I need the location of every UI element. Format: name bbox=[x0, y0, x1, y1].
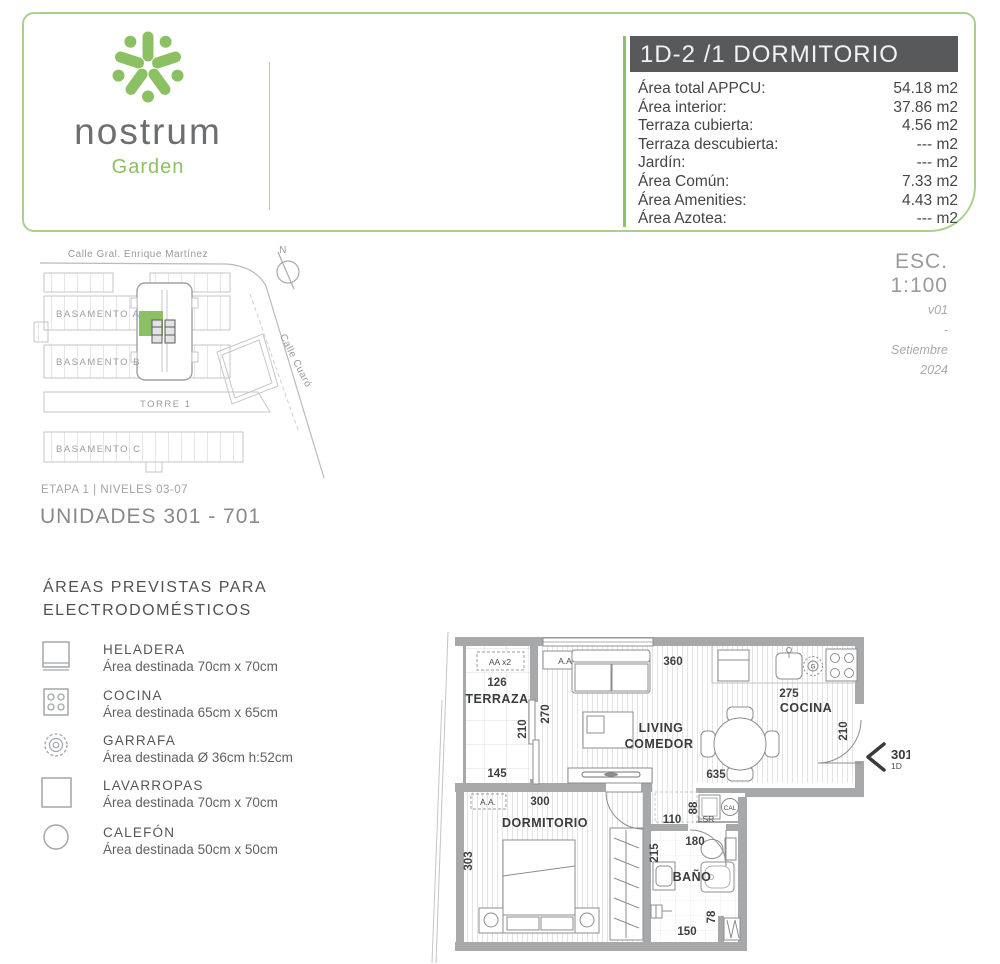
legend-item-name: CALEFÓN bbox=[103, 825, 175, 840]
terraza-label: TERRAZA bbox=[465, 692, 528, 706]
table-row: Terraza descubierta:--- m2 bbox=[638, 136, 958, 155]
area-value: --- m2 bbox=[917, 210, 958, 229]
scale-esc: ESC. bbox=[820, 250, 948, 274]
legend-item-desc: Área destinada 70cm x 70cm bbox=[103, 659, 278, 674]
area-value: 54.18 m2 bbox=[893, 80, 958, 99]
dim-215: 215 bbox=[649, 843, 661, 863]
scale-year: 2024 bbox=[820, 362, 948, 378]
street-top-label: Calle Gral. Enrique Martínez bbox=[68, 249, 208, 260]
water-heater-icon bbox=[40, 823, 72, 855]
svg-text:G: G bbox=[810, 664, 815, 671]
legend-item-name: HELADERA bbox=[103, 642, 185, 657]
basamento-a-label: BASAMENTO A bbox=[56, 309, 140, 320]
lsr-label: LSR bbox=[698, 814, 715, 824]
area-label: Área Azotea: bbox=[638, 210, 727, 229]
dim-270: 270 bbox=[540, 704, 552, 723]
dim-150: 150 bbox=[677, 926, 696, 938]
dim-180: 180 bbox=[685, 836, 704, 848]
area-value: 4.43 m2 bbox=[902, 192, 958, 211]
dim-275: 275 bbox=[779, 688, 799, 700]
brand-name: nostrum bbox=[58, 111, 238, 153]
legend-title: ÁREAS PREVISTAS PARA ELECTRODOMÉSTICOS bbox=[43, 576, 267, 622]
legend-title-line1: ÁREAS PREVISTAS PARA bbox=[43, 576, 267, 599]
living-label-1: LIVING bbox=[639, 721, 684, 735]
dim-300: 300 bbox=[530, 796, 549, 808]
stage-level-label: ETAPA 1 | NIVELES 03-07 bbox=[41, 484, 188, 496]
basamento-c-label: BASAMENTO C bbox=[56, 444, 141, 455]
living-label-2: COMEDOR bbox=[625, 737, 694, 751]
legend-item-lavarropas: LAVARROPAS Área destinada 70cm x 70cm bbox=[40, 776, 370, 818]
table-row: Área Común:7.33 m2 bbox=[638, 173, 958, 192]
scale-version: v01 bbox=[820, 302, 948, 318]
fridge-space bbox=[718, 650, 749, 681]
dim-88: 88 bbox=[688, 801, 700, 814]
area-label: Terraza cubierta: bbox=[638, 117, 753, 136]
site-plan: N Calle Gral. Enrique Martínez Call bbox=[30, 240, 340, 490]
legend-item-heladera: HELADERA Área destinada 70cm x 70cm bbox=[40, 640, 370, 682]
brand-logo: nostrum Garden bbox=[58, 26, 238, 179]
legend-item-desc: Área destinada 50cm x 50cm bbox=[103, 842, 278, 857]
brand-subtitle: Garden bbox=[58, 156, 238, 179]
area-value: 37.86 m2 bbox=[893, 99, 958, 118]
scale-block: ESC. 1:100 v01 - Setiembre 2024 bbox=[820, 250, 948, 378]
torre-label: TORRE 1 bbox=[140, 399, 192, 410]
area-table: Área total APPCU:54.18 m2 Área interior:… bbox=[638, 80, 958, 229]
toilet bbox=[701, 838, 736, 860]
terrace-sliding-door bbox=[529, 700, 539, 784]
dim-210-terraza: 210 bbox=[517, 719, 529, 738]
basamento-b-label: BASAMENTO B bbox=[56, 357, 141, 368]
north-arrow-icon: N bbox=[277, 245, 299, 289]
dim-78: 78 bbox=[706, 910, 718, 923]
washer-icon bbox=[40, 776, 74, 810]
legend-item-name: COCINA bbox=[103, 688, 163, 703]
entry-chevron-icon bbox=[868, 744, 884, 770]
table-row: Área total APPCU:54.18 m2 bbox=[638, 80, 958, 99]
area-value: --- m2 bbox=[917, 154, 958, 173]
table-row: Jardín:--- m2 bbox=[638, 154, 958, 173]
unit-range-label: 301-701 bbox=[891, 747, 910, 762]
area-value: --- m2 bbox=[917, 136, 958, 155]
north-label: N bbox=[279, 245, 287, 256]
area-label: Terraza descubierta: bbox=[638, 136, 778, 155]
gas-bottle-icon bbox=[40, 731, 72, 763]
legend-item-name: LAVARROPAS bbox=[103, 778, 204, 793]
legend-item-calefon: CALEFÓN Área destinada 50cm x 50cm bbox=[40, 823, 370, 865]
units-range-label: UNIDADES 301 - 701 bbox=[40, 505, 261, 529]
legend-item-desc: Área destinada 65cm x 65cm bbox=[103, 705, 278, 720]
fridge-icon bbox=[40, 640, 72, 672]
area-value: 4.56 m2 bbox=[902, 117, 958, 136]
unit-title: 1D-2 /1 DORMITORIO bbox=[630, 36, 958, 72]
scale-sep: - bbox=[820, 322, 948, 338]
vent-duct bbox=[724, 918, 740, 940]
legend-item-desc: Área destinada Ø 36cm h:52cm bbox=[103, 750, 293, 765]
area-label: Área total APPCU: bbox=[638, 80, 766, 99]
area-label: Área Común: bbox=[638, 173, 729, 192]
dim-635: 635 bbox=[706, 769, 726, 781]
scale-month: Setiembre bbox=[820, 342, 948, 358]
aa-living-label: A.A bbox=[558, 656, 572, 666]
legend-title-line2: ELECTRODOMÉSTICOS bbox=[43, 599, 267, 622]
scale-ratio: 1:100 bbox=[820, 274, 948, 298]
dim-360: 360 bbox=[663, 656, 682, 668]
area-value: 7.33 m2 bbox=[902, 173, 958, 192]
area-label: Área Amenities: bbox=[638, 192, 747, 211]
dim-126: 126 bbox=[487, 677, 506, 689]
legend-item-desc: Área destinada 70cm x 70cm bbox=[103, 795, 278, 810]
brand-flower-icon bbox=[107, 26, 189, 106]
dim-110: 110 bbox=[663, 814, 682, 826]
table-row: Área interior:37.86 m2 bbox=[638, 99, 958, 118]
legend-item-garrafa: GARRAFA Área destinada Ø 36cm h:52cm bbox=[40, 731, 370, 773]
cal-label: CAL bbox=[724, 805, 737, 812]
area-label: Jardín: bbox=[638, 154, 685, 173]
aa-x2-label: AA x2 bbox=[489, 657, 511, 667]
table-row: Área Azotea:--- m2 bbox=[638, 210, 958, 229]
cocina-label: COCINA bbox=[780, 701, 832, 715]
logo-divider bbox=[269, 62, 270, 210]
tower-footprint bbox=[131, 283, 198, 380]
dim-145: 145 bbox=[487, 768, 507, 780]
header-accent-rule bbox=[623, 36, 626, 227]
dim-210-cocina: 210 bbox=[838, 721, 850, 740]
floor-plan: G bbox=[425, 625, 910, 964]
legend-item-cocina: COCINA Área destinada 65cm x 65cm bbox=[40, 686, 370, 728]
stove-icon bbox=[40, 686, 72, 718]
table-row: Área Amenities:4.43 m2 bbox=[638, 192, 958, 211]
stove-space bbox=[826, 649, 857, 681]
lot-boundary-lines bbox=[432, 632, 448, 963]
legend-item-name: GARRAFA bbox=[103, 733, 176, 748]
dormitorio-label: DORMITORIO bbox=[502, 816, 588, 830]
area-label: Área interior: bbox=[638, 99, 727, 118]
bedroom-furniture bbox=[479, 828, 643, 940]
dim-303: 303 bbox=[463, 851, 475, 870]
wardrobe bbox=[610, 828, 643, 940]
bano-label: BAÑO bbox=[673, 869, 712, 884]
living-window bbox=[543, 638, 653, 646]
table-row: Terraza cubierta:4.56 m2 bbox=[638, 117, 958, 136]
unit-type-label: 1D bbox=[891, 761, 902, 771]
unit-entry-marker: 301-701 1D bbox=[868, 744, 910, 771]
aa-dorm-label: A.A. bbox=[480, 797, 496, 807]
